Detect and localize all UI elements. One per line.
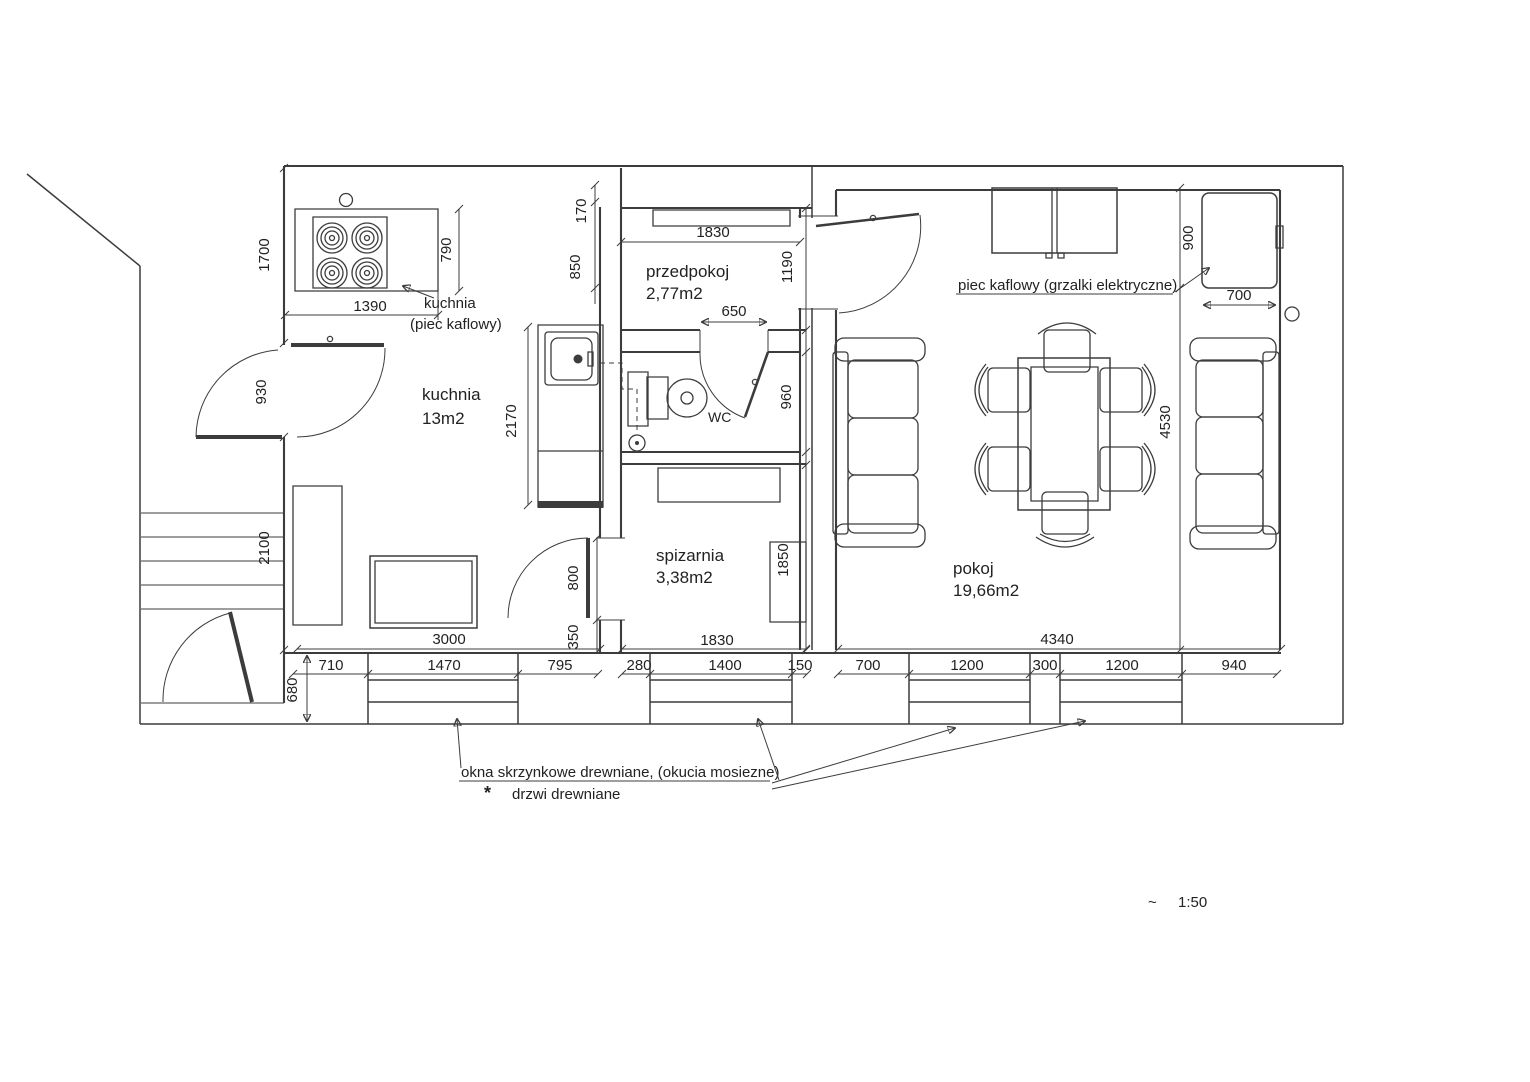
dim-795: 795 [547, 657, 572, 674]
dim-930: 930 [253, 379, 270, 404]
pokoj-door-arc [839, 215, 921, 313]
window-leader-pokoj-2 [772, 721, 1085, 789]
chair-seat [988, 447, 1030, 491]
dim-1200-a: 1200 [950, 657, 983, 674]
room-label-wc: WC [708, 409, 731, 425]
chair-seat [1042, 492, 1088, 534]
chair-seat [1100, 368, 1142, 412]
room-area-spizarnia: 3,38m2 [656, 568, 713, 587]
dim-150: 150 [787, 657, 812, 674]
faucet-icon [574, 355, 583, 364]
chair-back [975, 443, 988, 495]
chair-seat [1100, 447, 1142, 491]
sofa-cushion [1196, 360, 1263, 417]
tiled-stove-note: piec kaflowy (grzalki elektryczne) [958, 277, 1177, 294]
stove-note-line2: (piec kaflowy) [410, 316, 502, 333]
dim-300: 300 [1032, 657, 1057, 674]
plumbing-line [600, 363, 637, 433]
dim-3000: 3000 [432, 631, 465, 648]
chair-back [975, 364, 988, 416]
sofa-cushion [1196, 474, 1263, 533]
dim-800: 800 [565, 565, 582, 590]
dining-table-top [1031, 367, 1098, 501]
window-leader-kitchen [457, 719, 461, 768]
stove-note-leader [403, 286, 434, 298]
room-area-pokoj: 19,66m2 [953, 581, 1019, 600]
dim-1700: 1700 [256, 238, 273, 271]
dim-4340: 4340 [1040, 631, 1073, 648]
chair-seat [988, 368, 1030, 412]
kitchen-table [370, 556, 477, 628]
kitchen-door-arc-inner [297, 348, 385, 437]
stove-burners [317, 223, 382, 288]
dim-4530: 4530 [1157, 405, 1174, 438]
dim-790: 790 [438, 237, 455, 262]
dim-700-piec: 700 [1226, 287, 1251, 304]
room-label-kuchnia: kuchnia [422, 385, 481, 404]
dim-1400: 1400 [708, 657, 741, 674]
sink-counter-edge [538, 501, 603, 508]
windows-note: okna skrzynkowe drewniane, (okucia mosie… [461, 764, 779, 781]
wardrobe [992, 188, 1117, 253]
chair-back [1142, 364, 1155, 416]
dim-940: 940 [1221, 657, 1246, 674]
dim-1200-b: 1200 [1105, 657, 1138, 674]
floor-drain-dot [635, 441, 639, 445]
toilet-cistern [628, 372, 648, 426]
dim-1470: 1470 [427, 657, 460, 674]
dim-280: 280 [626, 657, 651, 674]
sofa-backrest [1263, 352, 1279, 534]
dining-table-outer [1018, 358, 1110, 510]
dim-850: 850 [567, 254, 584, 279]
floor-plan-drawing: 1700 930 2100 1390 790 170 850 2170 1830… [0, 0, 1530, 1082]
floor-plan-page: 1700 930 2100 1390 790 170 850 2170 1830… [0, 0, 1530, 1082]
dimension-lines [280, 164, 1285, 721]
dim-1830-spizarnia: 1830 [700, 632, 733, 649]
chair-back [1038, 323, 1096, 334]
stove-icon [313, 217, 387, 288]
toilet-icon [628, 372, 707, 426]
spizarnia-shelf-top [658, 468, 780, 502]
sofa-left [833, 338, 925, 547]
doors [163, 214, 921, 702]
dim-1390: 1390 [353, 298, 386, 315]
kitchen-table-inner [375, 561, 472, 623]
chimney-symbol [1285, 307, 1299, 321]
dim-650: 650 [721, 303, 746, 320]
tiled-stove-icon [1202, 193, 1277, 288]
dim-170: 170 [573, 198, 590, 223]
dining-chairs [975, 323, 1155, 547]
dim-900: 900 [1180, 225, 1197, 250]
sink-basin [551, 338, 592, 380]
dim-1850: 1850 [775, 543, 792, 576]
kitchen-cabinet [293, 486, 342, 625]
entrance-door-arc [163, 613, 230, 702]
dim-1830-przedpokoj: 1830 [696, 224, 729, 241]
doors-note: drzwi drewniane [512, 786, 620, 803]
wood-door-marker [327, 336, 332, 341]
dim-2170: 2170 [503, 404, 520, 437]
bottom-windows [368, 653, 1182, 724]
sofa-right [1190, 338, 1279, 549]
toilet-bowl-center [681, 392, 693, 404]
room-area-kuchnia: 13m2 [422, 409, 465, 428]
door-marker-asterisk: * [484, 783, 491, 803]
dim-680: 680 [284, 677, 301, 702]
dim-960: 960 [778, 384, 795, 409]
toilet-body [647, 377, 668, 419]
dining-table [1018, 358, 1110, 510]
toilet-bowl [667, 379, 707, 417]
room-area-przedpokoj: 2,77m2 [646, 284, 703, 303]
dim-710: 710 [318, 657, 343, 674]
dimension-texts: 1700 930 2100 1390 790 170 850 2170 1830… [253, 198, 1252, 702]
dim-1190: 1190 [779, 251, 796, 283]
site-edge-diagonal [27, 174, 140, 266]
flue-symbol [340, 194, 353, 207]
chair-back [1142, 443, 1155, 495]
kitchen-furniture [293, 209, 645, 628]
dim-2100: 2100 [256, 531, 273, 564]
chair-back [1036, 534, 1094, 547]
dim-350: 350 [565, 624, 582, 649]
stove-counter [295, 209, 438, 291]
dim-700: 700 [855, 657, 880, 674]
room-label-spizarnia: spizarnia [656, 546, 725, 565]
pokoj-furniture [833, 188, 1283, 549]
room-label-przedpokoj: przedpokoj [646, 262, 729, 281]
room-label-pokoj: pokoj [953, 559, 994, 578]
scale-value: 1:50 [1178, 894, 1207, 911]
sofa-cushion [1196, 417, 1263, 474]
entrance-door-leaf [230, 612, 252, 702]
chair-seat [1044, 330, 1090, 372]
sofa-cushion [848, 418, 918, 475]
scale-approx-symbol: ~ [1148, 894, 1157, 911]
sofa-cushion [848, 360, 918, 418]
